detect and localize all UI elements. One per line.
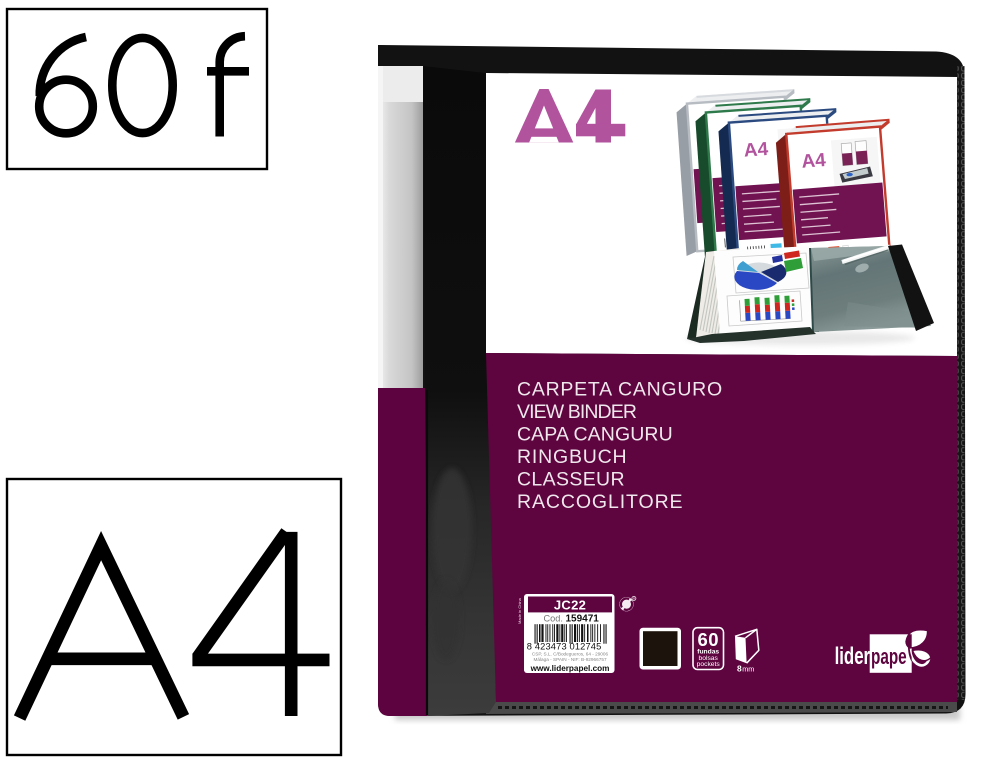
svg-text:JC22: JC22 (554, 598, 586, 613)
svg-text:8 423473 012745: 8 423473 012745 (527, 642, 602, 652)
svg-text:8: 8 (737, 664, 742, 674)
svg-text:CARPETA CANGURO: CARPETA CANGURO (517, 379, 723, 401)
svg-text:mm: mm (742, 665, 754, 674)
svg-text:RINGBUCH: RINGBUCH (517, 446, 627, 468)
svg-text:pape: pape (871, 645, 907, 670)
svg-text:CLASSEUR: CLASSEUR (517, 469, 625, 491)
svg-text:CAPA CANGURU: CAPA CANGURU (517, 424, 673, 446)
svg-text:A4: A4 (801, 150, 827, 173)
svg-text:www.liderpapel.com: www.liderpapel.com (530, 664, 610, 673)
svg-text:VIEW BINDER: VIEW BINDER (517, 401, 637, 423)
svg-text:Cod.: Cod. (544, 613, 563, 623)
svg-text:RACCOGLITORE: RACCOGLITORE (517, 491, 683, 513)
svg-text:A4: A4 (743, 139, 769, 162)
svg-text:159471: 159471 (566, 613, 600, 624)
svg-text:CSP, S.L. C/Bodegueros, 64 - 2: CSP, S.L. C/Bodegueros, 64 - 29006 (532, 651, 609, 656)
svg-text:60: 60 (698, 629, 719, 650)
svg-text:Made in China: Made in China (517, 597, 522, 624)
svg-text:lider: lider (835, 643, 870, 670)
svg-text:Málaga - SPAIN - NIF: B-929667: Málaga - SPAIN - NIF: B-92966757 (533, 657, 607, 662)
svg-text:pockets: pockets (697, 661, 721, 668)
